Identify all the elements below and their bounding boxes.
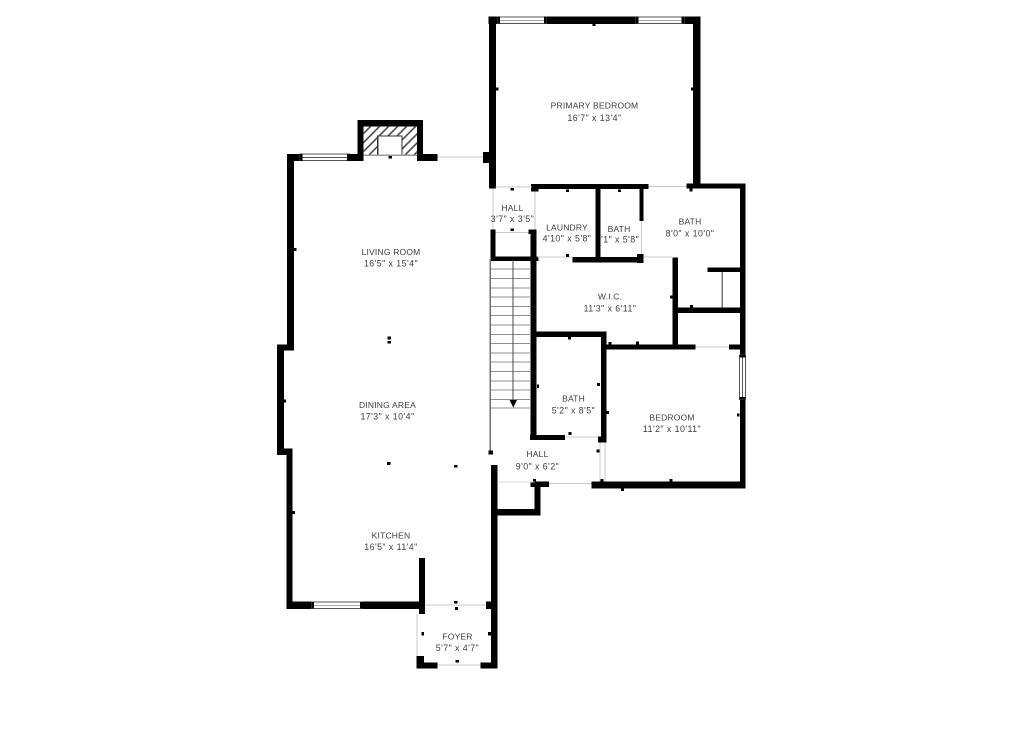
svg-text:HALL: HALL [501,203,523,213]
svg-text:16'7" x 13'4": 16'7" x 13'4" [567,113,621,123]
svg-text:3'1" x 5'8": 3'1" x 5'8" [596,235,639,245]
svg-text:FOYER: FOYER [442,632,472,642]
svg-text:16'5" x 15'4": 16'5" x 15'4" [364,258,418,268]
svg-text:16'5" x 11'4": 16'5" x 11'4" [364,542,417,552]
svg-text:BATH: BATH [562,394,585,404]
svg-text:4'10" x 5'8": 4'10" x 5'8" [543,233,592,243]
svg-text:LIVING ROOM: LIVING ROOM [362,247,421,257]
svg-text:3'7" x 3'5": 3'7" x 3'5" [491,214,534,224]
svg-text:LAUNDRY: LAUNDRY [546,223,588,233]
svg-text:8'0" x 10'0": 8'0" x 10'0" [666,228,715,238]
svg-text:PRIMARY BEDROOM: PRIMARY BEDROOM [551,101,639,111]
svg-text:W.I.C.: W.I.C. [598,292,622,302]
svg-text:KITCHEN: KITCHEN [372,531,411,541]
svg-text:HALL: HALL [526,449,548,459]
svg-text:9'0" x 6'2": 9'0" x 6'2" [516,461,559,471]
svg-text:BEDROOM: BEDROOM [649,413,694,423]
svg-text:11'2" x 10'11": 11'2" x 10'11" [643,424,701,434]
svg-text:BATH: BATH [679,217,702,227]
svg-text:BATH: BATH [608,224,631,234]
svg-text:DINING AREA: DINING AREA [359,400,416,410]
svg-text:17'3" x 10'4": 17'3" x 10'4" [360,411,414,421]
svg-text:5'7" x 4'7": 5'7" x 4'7" [436,643,479,653]
svg-text:5'2" x 8'5": 5'2" x 8'5" [552,405,595,415]
svg-text:11'3" x 6'11": 11'3" x 6'11" [584,304,637,314]
